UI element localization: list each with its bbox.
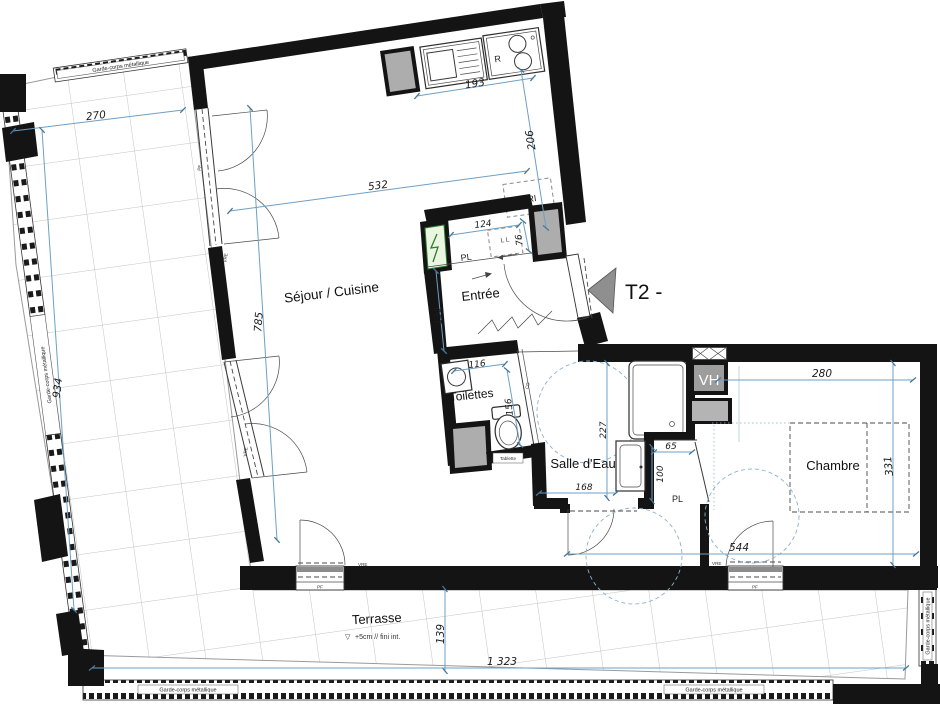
window-leaf-arc (218, 110, 267, 171)
dim-65: 65 (665, 442, 677, 452)
wall-sdeau-south-right (638, 498, 652, 509)
dim-206: 206 (523, 129, 538, 151)
door-arc (300, 520, 345, 565)
dim-270: 270 (85, 109, 107, 123)
dim-1323: 1 323 (487, 656, 517, 668)
sliding-door-label: CD (524, 381, 530, 389)
floor-plan: Garde-corps métallique Garde-corps métal… (0, 0, 940, 705)
shelf-label: Tablette (500, 456, 517, 461)
window-leaf-arc (216, 188, 279, 238)
vh-label: VH (699, 372, 720, 389)
pl-chambre-label: PL (672, 494, 683, 504)
vent-stack: VH (688, 347, 732, 424)
level-symbol-icon: ▽ (345, 634, 351, 641)
railing-label-right: Garde-corps métallique (926, 597, 932, 654)
corner-wall-bottom-right (833, 684, 940, 704)
cooktop (483, 28, 545, 80)
threshold-zigzag (478, 311, 552, 334)
ll-label: L L (500, 236, 510, 244)
room-label-sejour: Séjour / Cuisine (283, 279, 379, 306)
room-label-terrasse: Terrasse (351, 610, 402, 628)
dim-532: 532 (367, 179, 389, 194)
pl-chambre-front (695, 442, 709, 502)
railing-pier (2, 122, 38, 162)
entrance-triangle-icon (588, 268, 616, 313)
entry-area: TRI L L PL T2 - (420, 178, 662, 354)
window-leaf-arc (245, 424, 307, 472)
floor-plan-svg: Garde-corps métallique Garde-corps métal… (0, 0, 940, 705)
dim-227: 227 (599, 421, 609, 438)
wall-chambre-door-jamb (700, 504, 709, 566)
window-label-pf: PF (317, 585, 323, 590)
dim-116: 116 (468, 359, 487, 371)
unit-label: T2 - (625, 281, 662, 304)
entry-duct (534, 209, 562, 255)
dim-331: 331 (882, 455, 896, 476)
railing-label-bottom-2: Garde-corps métallique (685, 688, 742, 694)
window-label-pf: PF (752, 585, 758, 590)
dim-193: 193 (464, 77, 486, 92)
railing-label-bottom-1: Garde-corps métallique (159, 688, 216, 694)
railing-bottom: Garde-corps métallique Garde-corps métal… (83, 680, 833, 700)
corner-pier (921, 664, 938, 686)
dim-76: 76 (514, 233, 526, 246)
dim-544: 544 (729, 542, 749, 554)
entry-direction-arrow (485, 272, 492, 278)
window-label-vre: VRE (222, 253, 228, 263)
room-label-salle-deau: Salle d'Eau (550, 456, 615, 471)
railing-right: Garde-corps métallique (919, 586, 936, 666)
railing-corner (68, 648, 104, 686)
dim-100: 100 (656, 465, 666, 482)
dim-934: 934 (51, 377, 65, 398)
dim-139: 139 (435, 624, 447, 644)
pl-entree-label: PL (460, 252, 472, 263)
terrace-level-note: +5cm // fini int. (355, 634, 400, 641)
room-label-chambre: Chambre (806, 458, 859, 473)
window-label-vre: VRE (712, 561, 721, 566)
wall-below-cd (531, 442, 547, 506)
dim-156: 156 (504, 398, 516, 416)
window-leaf-arc (231, 356, 279, 417)
window-label-vre: VRE (358, 562, 367, 567)
window-label-vre: VRE (242, 447, 248, 457)
window-label-pf: PF (197, 164, 203, 171)
turning-circle (705, 469, 799, 563)
toilettes-duct (453, 426, 487, 468)
room-label-entree: Entrée (461, 285, 501, 304)
dim-168: 168 (575, 483, 592, 493)
wall-north-right-wing (578, 344, 937, 362)
hatch-box (692, 347, 727, 360)
duct-box (692, 401, 728, 421)
railing-pier (0, 74, 26, 112)
wall-kitchen-east (543, 15, 586, 225)
dim-130: 130 (433, 307, 445, 325)
entrance-door-leaf (566, 254, 590, 318)
shower-tray (629, 361, 687, 439)
toilettes-room: Tablette CD (437, 340, 578, 506)
wall-south (240, 566, 937, 590)
dim-785: 785 (252, 311, 265, 332)
wall-east (920, 362, 937, 590)
door-hinge-block (560, 504, 570, 513)
dim-280: 280 (812, 368, 832, 380)
vanity-handle (640, 466, 643, 469)
